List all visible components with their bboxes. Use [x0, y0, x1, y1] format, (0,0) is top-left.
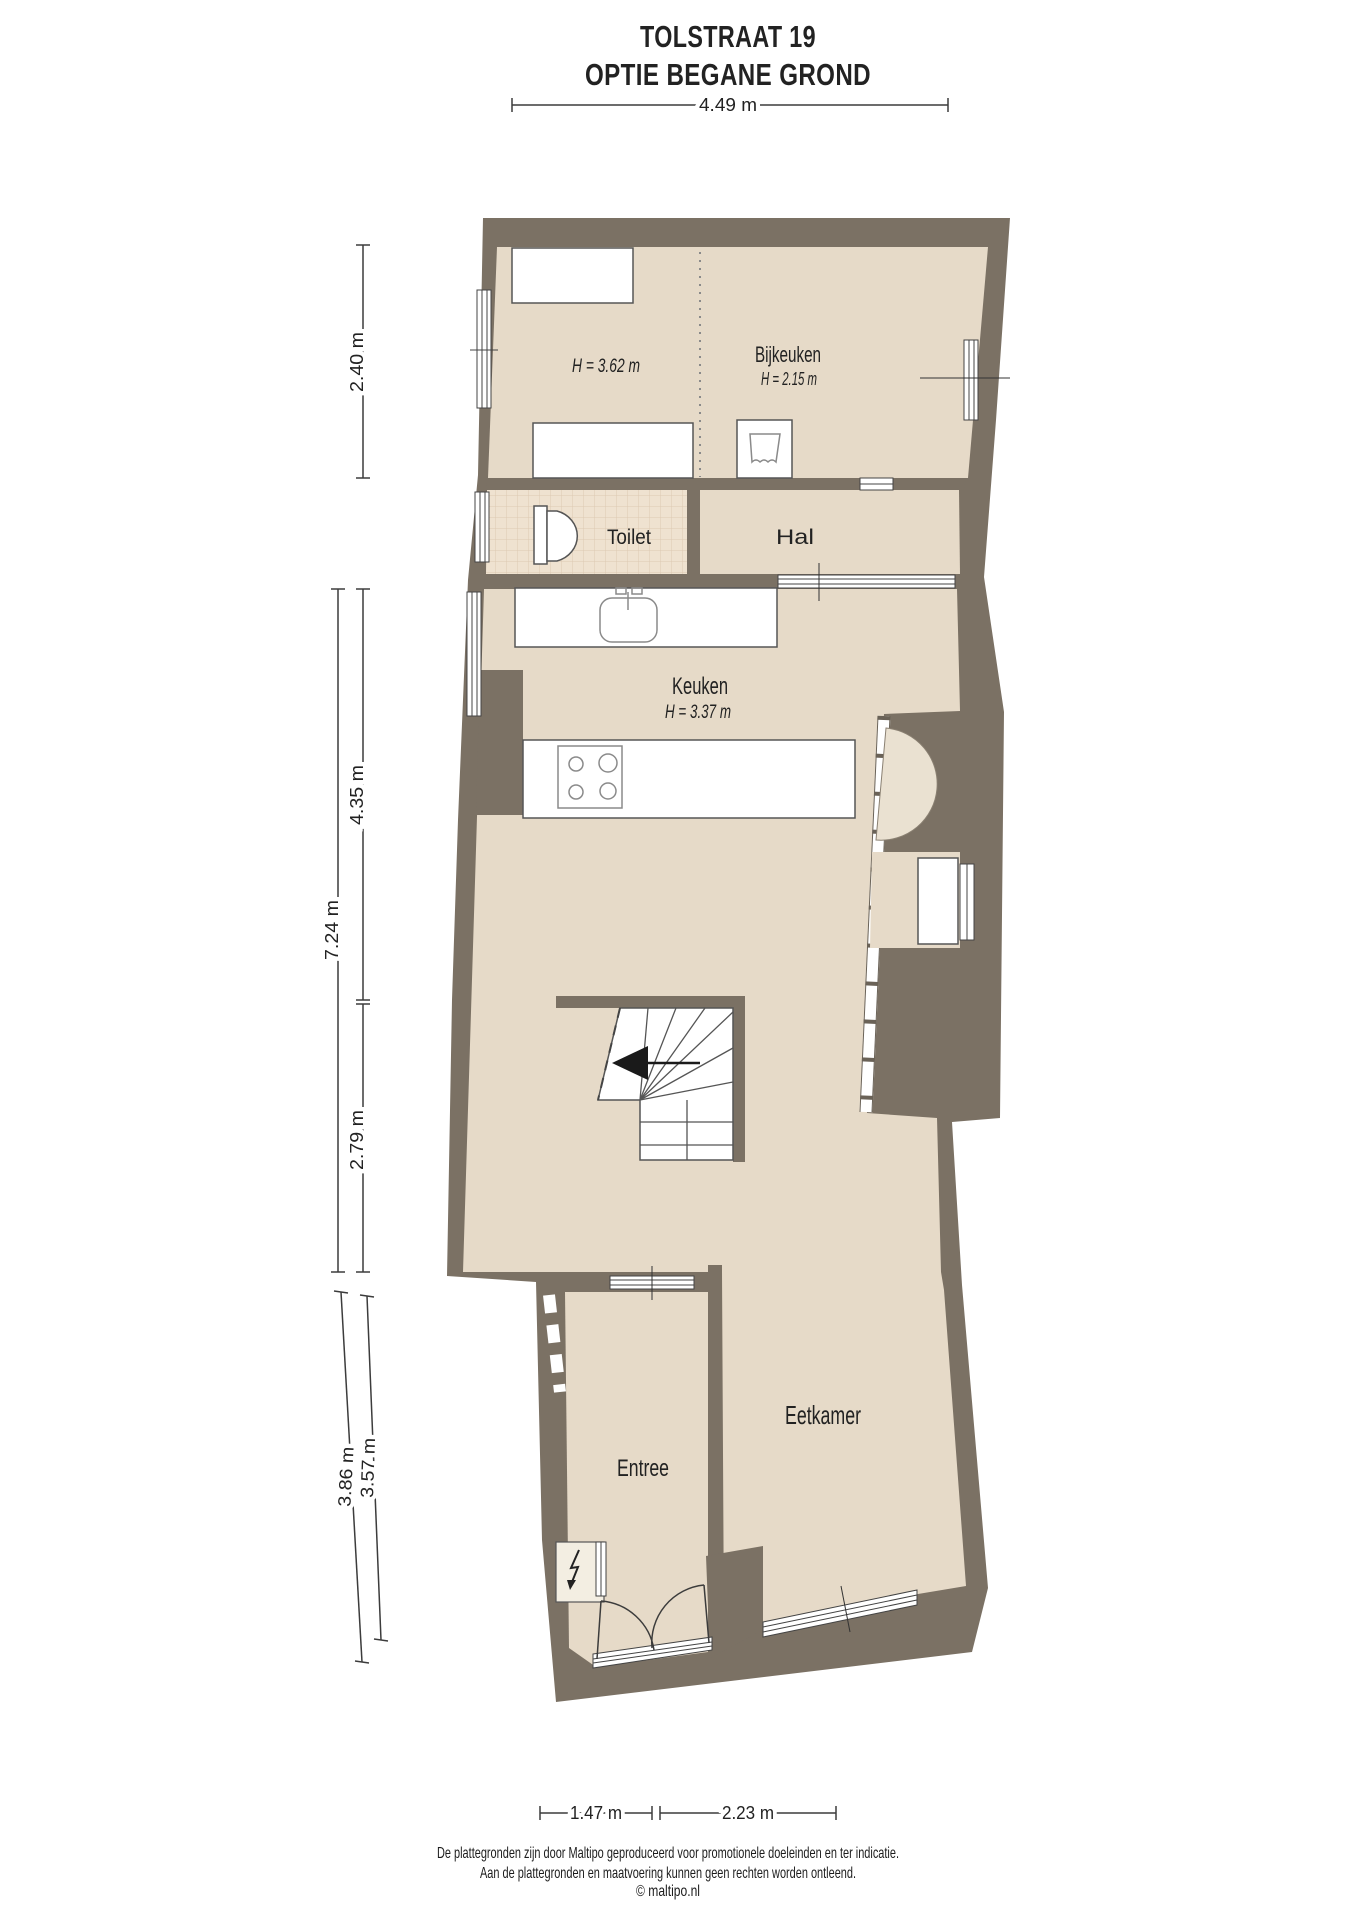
counter-above-toilet — [533, 423, 693, 478]
dim-386-label: 3.86 m — [334, 1446, 357, 1507]
dim-357-label: 3.57 m — [357, 1437, 379, 1498]
alcove-right — [870, 852, 974, 948]
dim-279-label: 2.79 m — [347, 1110, 367, 1170]
floorplan-canvas: TOLSTRAAT 19 OPTIE BEGANE GROND 4.49 m — [0, 0, 1358, 1920]
label-keuken-height: H = 3.37 m — [665, 702, 731, 723]
dim-435-label: 4.35 m — [347, 765, 367, 825]
floor-toilet-tiles — [486, 490, 687, 574]
page-subtitle: OPTIE BEGANE GROND — [585, 57, 871, 92]
meter-cabinet — [556, 1542, 606, 1602]
footer-copyright: © maltipo.nl — [636, 1883, 700, 1900]
label-bijkeuken-height: H = 2.15 m — [761, 369, 817, 389]
label-toilet: Toilet — [607, 526, 651, 549]
washing-machine-icon — [737, 420, 792, 478]
dim-724-label: 7.24 m — [322, 900, 342, 960]
counter-top-left — [512, 248, 633, 303]
floor-hal — [700, 490, 960, 574]
sink-counter — [515, 588, 777, 647]
alcove-cabinet — [918, 858, 958, 944]
label-entree: Entree — [617, 1455, 669, 1482]
window-icon-hal-right — [860, 478, 893, 490]
wall-chimney — [476, 670, 523, 815]
window-icon-keuken-left — [467, 592, 481, 716]
label-keuken: Keuken — [672, 673, 728, 700]
kitchen-island — [523, 740, 855, 818]
meter-door-hatch — [596, 1542, 606, 1596]
dim-147-label: 1.47 m — [570, 1803, 622, 1823]
label-eetkamer: Eetkamer — [785, 1400, 861, 1430]
label-hal: Hal — [776, 526, 814, 549]
window-icon-toilet-left — [475, 492, 489, 562]
dim-223-label: 2.23 m — [722, 1803, 774, 1823]
page-title: TOLSTRAAT 19 — [640, 19, 816, 54]
floorplan-page: TOLSTRAAT 19 OPTIE BEGANE GROND 4.49 m — [0, 0, 1358, 1920]
dim-240-label: 2.40 m — [347, 332, 367, 392]
footer-disclaimer-2: Aan de plattegronden en maatvoering kunn… — [480, 1865, 856, 1882]
label-bijkeuken: Bijkeuken — [755, 342, 821, 367]
footer-disclaimer-1: De plattegronden zijn door Maltipo gepro… — [437, 1845, 899, 1862]
wall-under-bijkeuken — [486, 478, 966, 490]
dimension-top-label: 4.49 m — [699, 95, 757, 115]
label-utility-height: H = 3.62 m — [572, 356, 640, 377]
alcove-window-icon — [960, 864, 974, 940]
